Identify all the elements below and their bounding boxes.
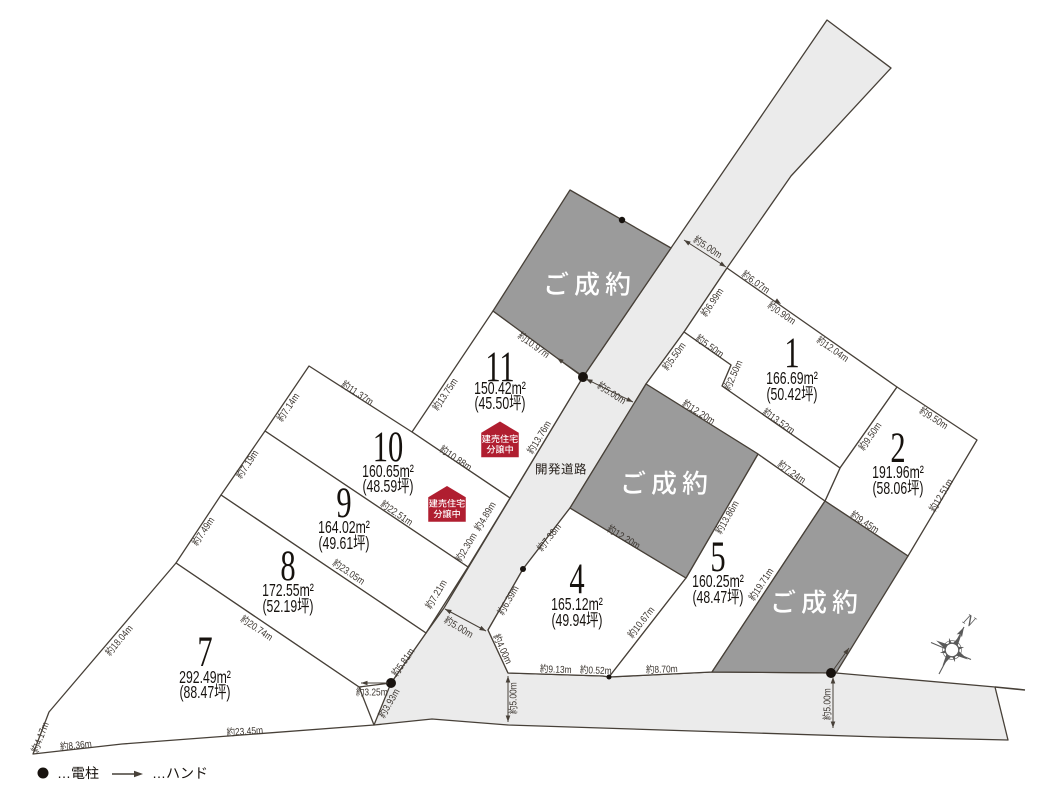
svg-text:): ) <box>919 479 923 499</box>
svg-text:): ) <box>226 683 230 703</box>
svg-text:(50.42: (50.42 <box>766 385 801 405</box>
svg-text:(49.61: (49.61 <box>318 534 353 554</box>
svg-text:): ) <box>813 385 817 405</box>
svg-text:): ) <box>521 394 525 414</box>
svg-text:(48.59: (48.59 <box>362 477 397 497</box>
svg-text:0.52m: 0.52m <box>588 665 612 677</box>
svg-text:): ) <box>409 477 413 497</box>
svg-text:(52.19: (52.19 <box>262 597 297 617</box>
svg-text:(45.50: (45.50 <box>474 394 509 414</box>
svg-text:(88.47: (88.47 <box>179 683 214 703</box>
svg-text:): ) <box>739 588 743 608</box>
svg-text:): ) <box>598 611 602 631</box>
svg-text:8.70m: 8.70m <box>654 663 678 675</box>
svg-text:5.00m: 5.00m <box>508 682 519 706</box>
svg-text:): ) <box>365 534 369 554</box>
svg-text:): ) <box>309 597 313 617</box>
svg-text:…: … <box>57 765 71 781</box>
svg-text:(48.47: (48.47 <box>692 588 727 608</box>
svg-text:9.13m: 9.13m <box>548 664 572 676</box>
svg-text:5.00m: 5.00m <box>822 688 833 712</box>
svg-text:3.25m: 3.25m <box>364 687 388 698</box>
svg-text:…: … <box>152 765 166 781</box>
svg-text:(58.06: (58.06 <box>872 479 907 499</box>
svg-text:23.45m: 23.45m <box>235 725 264 738</box>
svg-text:(49.94: (49.94 <box>551 611 586 631</box>
